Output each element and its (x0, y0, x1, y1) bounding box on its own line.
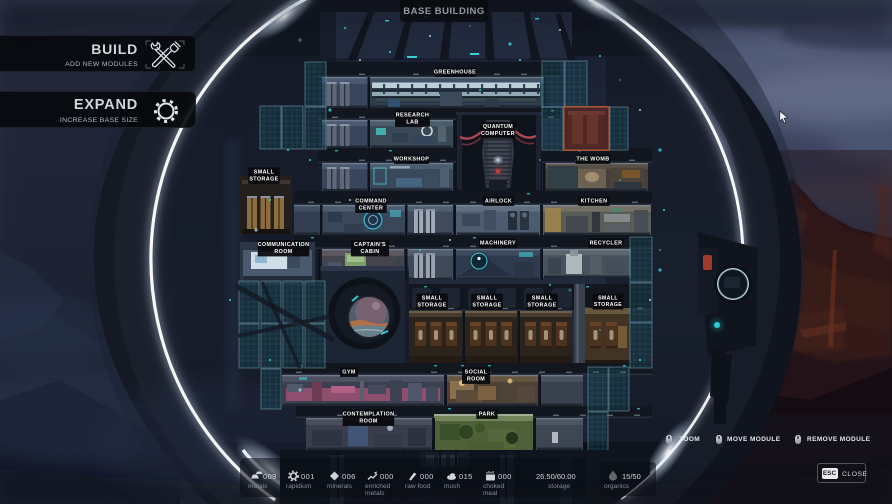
svg-text:COMMAND: COMMAND (355, 199, 387, 205)
svg-text:STORAGE: STORAGE (472, 303, 501, 309)
svg-text:GYM: GYM (342, 370, 356, 376)
svg-text:STORAGE: STORAGE (527, 303, 556, 309)
svg-text:SMALL: SMALL (422, 296, 443, 302)
svg-text:PARK: PARK (479, 412, 495, 418)
svg-text:LAB: LAB (406, 120, 418, 126)
svg-text:SMALL: SMALL (477, 296, 498, 302)
svg-text:STORAGE: STORAGE (594, 302, 622, 308)
svg-text:ROOM: ROOM (359, 419, 377, 425)
svg-text:RESEARCH: RESEARCH (396, 113, 429, 119)
svg-text:CENTER: CENTER (359, 206, 384, 212)
svg-text:SOCIAL: SOCIAL (465, 370, 488, 376)
svg-text:COMMUNICATION: COMMUNICATION (258, 242, 310, 248)
svg-text:STORAGE: STORAGE (249, 177, 278, 183)
svg-text:KITCHEN: KITCHEN (581, 199, 608, 205)
svg-text:CAPTAIN'S: CAPTAIN'S (354, 242, 386, 248)
svg-text:GREENHOUSE: GREENHOUSE (434, 70, 476, 76)
svg-text:CONTEMPLATION: CONTEMPLATION (343, 412, 395, 418)
svg-text:SMALL: SMALL (598, 295, 618, 301)
svg-text:ROOM: ROOM (274, 249, 292, 255)
svg-text:THE WOMB: THE WOMB (576, 157, 609, 163)
svg-text:COMPUTER: COMPUTER (481, 131, 515, 137)
svg-text:CABIN: CABIN (360, 249, 379, 255)
svg-text:STORAGE: STORAGE (417, 303, 446, 309)
svg-text:SMALL: SMALL (254, 170, 275, 176)
svg-text:RECYCLER: RECYCLER (590, 241, 623, 247)
svg-text:QUANTUM: QUANTUM (483, 124, 513, 130)
svg-text:MACHINERY: MACHINERY (480, 241, 516, 247)
svg-text:ROOM: ROOM (467, 377, 485, 383)
svg-text:SMALL: SMALL (532, 296, 553, 302)
svg-text:WORKSHOP: WORKSHOP (394, 157, 430, 163)
svg-text:AIRLOCK: AIRLOCK (485, 199, 512, 205)
